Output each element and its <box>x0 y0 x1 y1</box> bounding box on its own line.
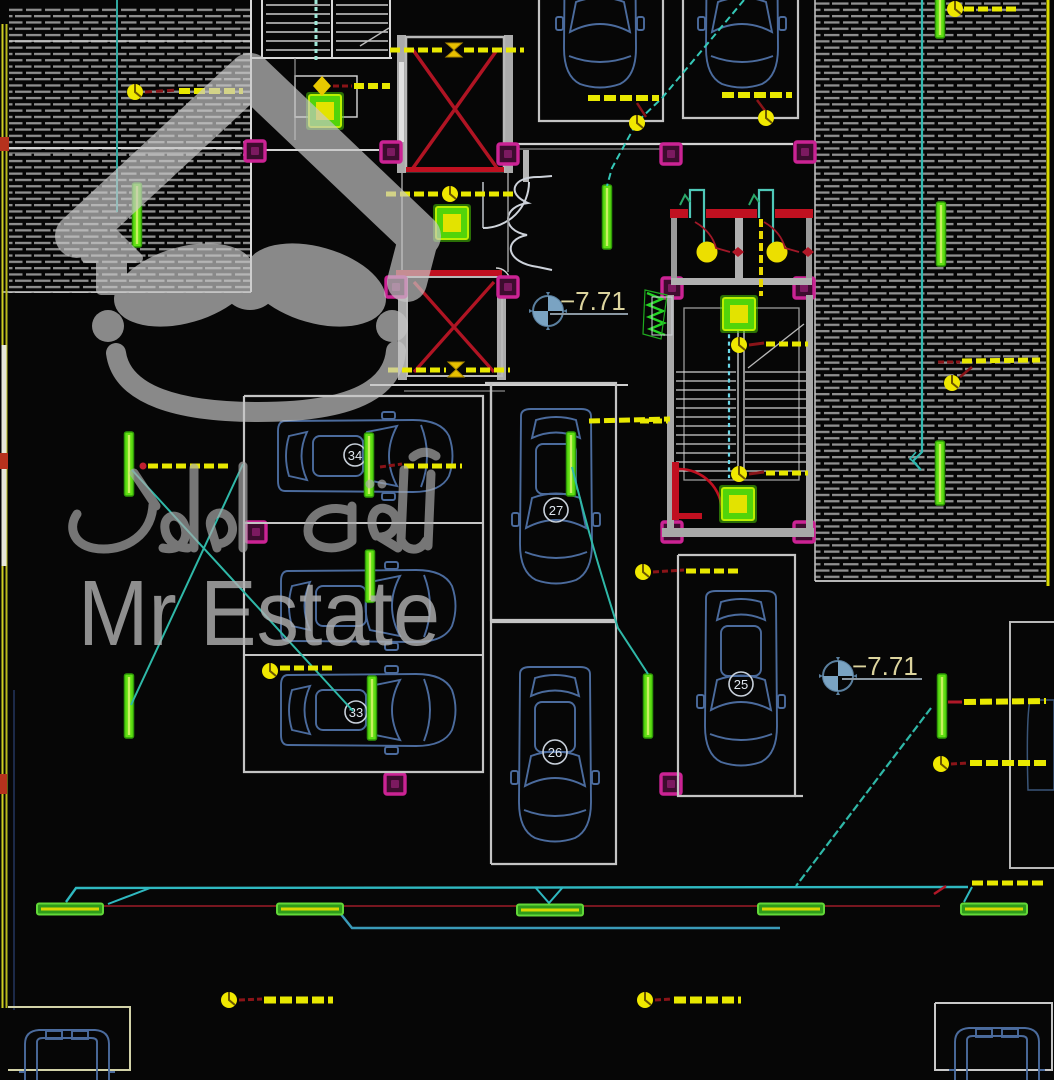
svg-text:34: 34 <box>348 448 362 463</box>
svg-text:−7.71: −7.71 <box>560 286 626 316</box>
svg-text:−7.71: −7.71 <box>852 651 918 681</box>
svg-text:27: 27 <box>549 503 563 518</box>
svg-text:33: 33 <box>349 705 363 720</box>
svg-text:26: 26 <box>548 745 562 760</box>
svg-text:25: 25 <box>734 677 748 692</box>
svg-text:Mr Estate: Mr Estate <box>78 561 440 665</box>
